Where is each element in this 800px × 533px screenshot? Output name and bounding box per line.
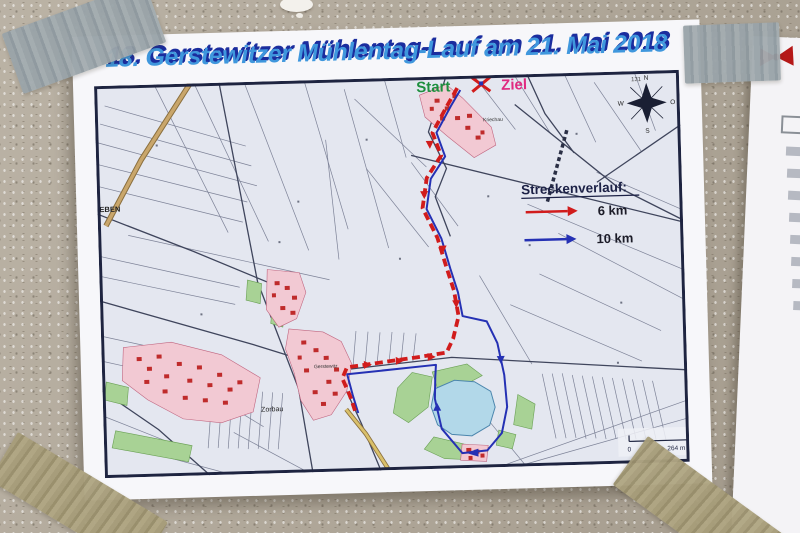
race-poster: 18. Gerstewitzer Mühlentag-Lauf am 21. M… (72, 19, 713, 500)
tape-top-right (683, 22, 781, 83)
sheet-outline-box (781, 115, 800, 134)
place-kriechau: Kriechau (483, 117, 503, 124)
ziel-label: Ziel (501, 76, 527, 94)
photo-of-wall: 18. Gerstewitzer Mühlentag-Lauf am 21. M… (0, 0, 800, 533)
compass-n: N (644, 75, 649, 82)
wall-speck (280, 0, 313, 12)
place-gerstewitz: Gerstewitz (314, 364, 338, 371)
course-map-svg: Start Ziel Streckenverlauf: 6 km (94, 70, 690, 478)
legend-6km: 6 km (597, 202, 627, 218)
scale-zero: 0 (627, 446, 631, 453)
legend-heading: Streckenverlauf: (521, 179, 627, 197)
start-label: Start (416, 78, 451, 96)
place-zorbau: Zorbau (261, 406, 283, 414)
sheet-text-bar (786, 147, 800, 158)
sheet-text-bar (793, 301, 800, 312)
compass-w: W (618, 100, 625, 107)
sheet-text-bar (788, 191, 800, 202)
sheet-text-bar (790, 235, 800, 246)
sheet-text-bar (789, 213, 800, 224)
spot-height: 131 (631, 77, 642, 83)
sheet-text-bar (787, 169, 800, 180)
legend-10km: 10 km (596, 230, 633, 246)
wall-speck-small (296, 13, 303, 18)
sheet-text-bar (792, 279, 800, 290)
course-map: Start Ziel Streckenverlauf: 6 km (94, 70, 690, 478)
place-eben: EBEN (99, 205, 120, 215)
second-sheet (730, 36, 800, 533)
sheet-text-bar (791, 257, 800, 268)
compass-o: O (670, 99, 675, 106)
poster-title: 18. Gerstewitzer Mühlentag-Lauf am 21. M… (72, 19, 701, 75)
